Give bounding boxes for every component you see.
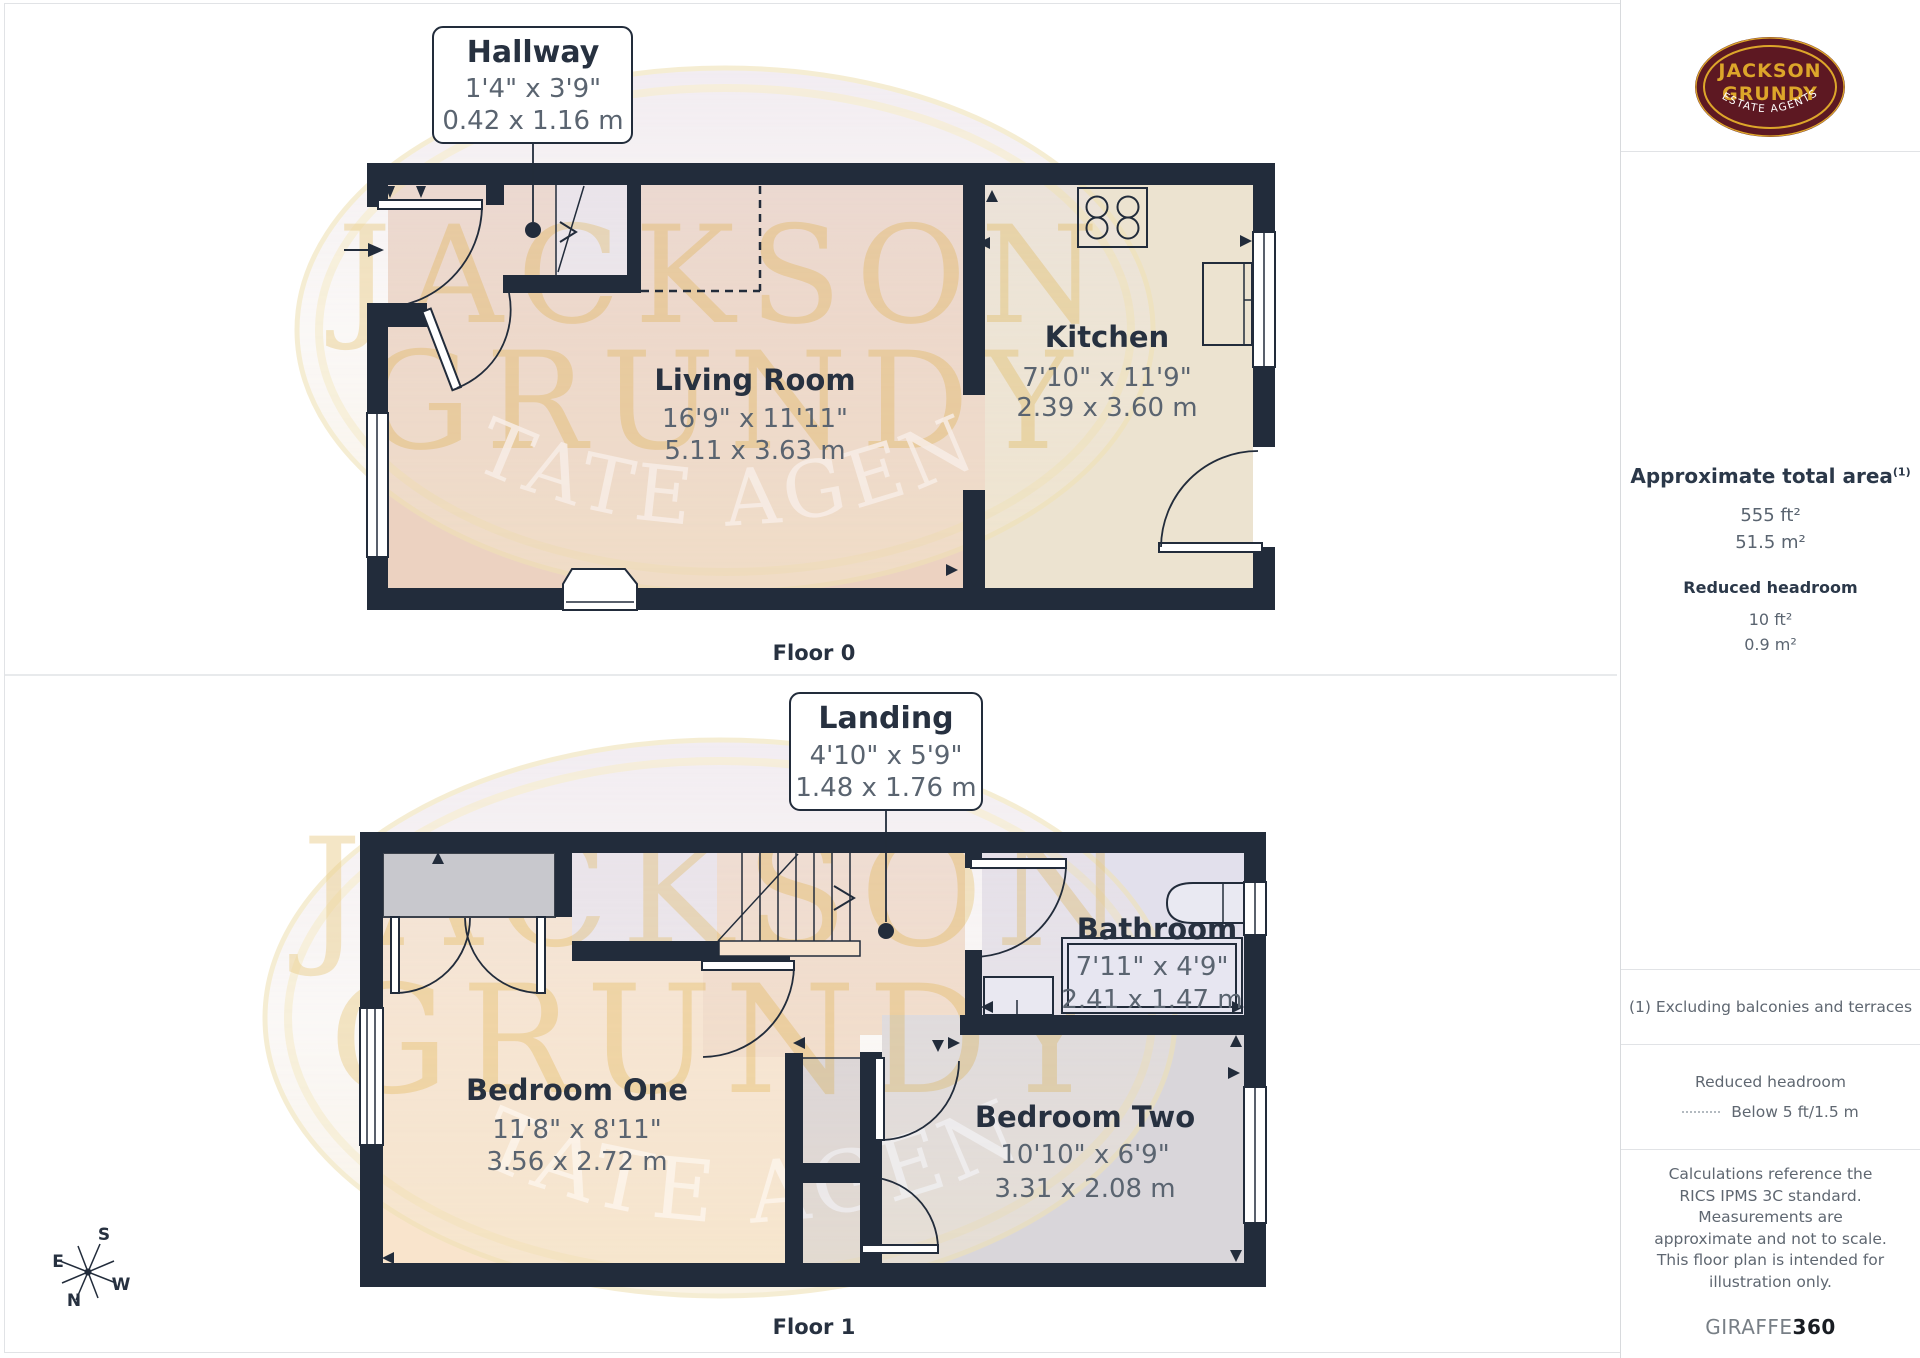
compass-e: E — [52, 1252, 64, 1272]
living-room-metric: 5.11 x 3.63 m — [664, 436, 845, 466]
legend-label: Below 5 ft/1.5 m — [1731, 1103, 1859, 1121]
reduced-headroom-imperial: 10 ft² — [1749, 607, 1792, 632]
total-area-heading: Approximate total area(1) — [1630, 464, 1910, 488]
floorplans-canvas: JACKSON GRUNDY ESTATE AGENTS — [0, 0, 1617, 1353]
living-room-imperial: 16'9" x 11'11" — [662, 404, 848, 434]
wardrobe-door-right-leaf — [537, 917, 545, 993]
bathroom-imperial: 7'11" x 4'9" — [1076, 952, 1229, 982]
logo-line1: JACKSON — [1716, 60, 1821, 82]
total-area-imperial: 555 ft² — [1740, 502, 1800, 529]
disclaimer-text: Calculations reference the RICS IPMS 3C … — [1650, 1164, 1892, 1293]
bedroom-two-imperial: 10'10" x 6'9" — [1000, 1140, 1169, 1170]
floor0-label: Floor 0 — [773, 641, 856, 665]
landing-callout-imperial: 4'10" x 5'9" — [810, 741, 963, 771]
wardrobe-door-left-leaf — [391, 917, 399, 993]
bathroom-label: Bathroom — [1077, 912, 1238, 946]
disclaimer-section: Calculations reference the RICS IPMS 3C … — [1621, 1150, 1920, 1353]
area-summary-section: Approximate total area(1) 555 ft² 51.5 m… — [1621, 152, 1920, 970]
bay-window-icon — [563, 569, 637, 610]
landing-callout-title: Landing — [818, 701, 953, 736]
closet-door-leaf — [862, 1245, 938, 1253]
floor1-label: Floor 1 — [773, 1315, 856, 1339]
info-sidebar: JACKSON GRUNDY ESTATE AGENTS Approximate… — [1620, 0, 1920, 1358]
floorplan-page: JACKSON GRUNDY ESTATE AGENTS — [0, 0, 1920, 1358]
hallway-callout-imperial: 1'4" x 3'9" — [465, 74, 601, 104]
reduced-headroom-legend: Reduced headroom Below 5 ft/1.5 m — [1621, 1045, 1920, 1150]
footnote: (1) Excluding balconies and terraces — [1621, 970, 1920, 1045]
total-area-metric: 51.5 m² — [1735, 529, 1806, 556]
bathroom-metric: 2.41 x 1.47 m — [1061, 985, 1242, 1015]
compass-w: W — [112, 1275, 131, 1295]
bathroom-door-leaf — [971, 859, 1066, 868]
bedroom-one-label: Bedroom One — [466, 1073, 688, 1107]
dashed-line-icon — [1682, 1111, 1720, 1113]
compass-icon: S E W N — [52, 1225, 130, 1311]
kitchen-imperial: 7'10" x 11'9" — [1022, 363, 1191, 393]
landing-callout-metric: 1.48 x 1.76 m — [795, 773, 976, 803]
bedroom-one-door-leaf — [702, 961, 794, 970]
hallway-callout-dot — [525, 222, 541, 238]
reduced-headroom-metric: 0.9 m² — [1744, 632, 1797, 657]
wardrobe-icon — [383, 853, 555, 917]
agency-logo: JACKSON GRUNDY ESTATE AGENTS — [1621, 0, 1920, 152]
hallway-callout-metric: 0.42 x 1.16 m — [442, 106, 623, 136]
living-room-label: Living Room — [654, 363, 855, 397]
kitchen-metric: 2.39 x 3.60 m — [1016, 393, 1197, 423]
basin-icon — [984, 977, 1053, 1015]
landing-callout-dot — [878, 923, 894, 939]
reduced-headroom-heading: Reduced headroom — [1683, 578, 1857, 597]
floor0-plan: JACKSON GRUNDY ESTATE AGENTS — [0, 0, 1275, 665]
kitchen-door-leaf — [1159, 543, 1262, 552]
giraffe360-credit: GIRAFFE360 — [1705, 1315, 1836, 1339]
bedroom-two-label: Bedroom Two — [975, 1100, 1195, 1134]
hallway-callout-title: Hallway — [467, 35, 600, 70]
compass-n: N — [67, 1291, 81, 1311]
legend-heading: Reduced headroom — [1695, 1073, 1846, 1091]
bedroom-one-imperial: 11'8" x 8'11" — [492, 1115, 661, 1145]
front-door-leaf — [378, 200, 482, 209]
bedroom-two-metric: 3.31 x 2.08 m — [994, 1174, 1175, 1204]
compass-s: S — [98, 1225, 110, 1245]
bedroom-one-metric: 3.56 x 2.72 m — [486, 1147, 667, 1177]
bedroom-two-door-leaf — [875, 1058, 884, 1140]
kitchen-label: Kitchen — [1045, 320, 1169, 354]
